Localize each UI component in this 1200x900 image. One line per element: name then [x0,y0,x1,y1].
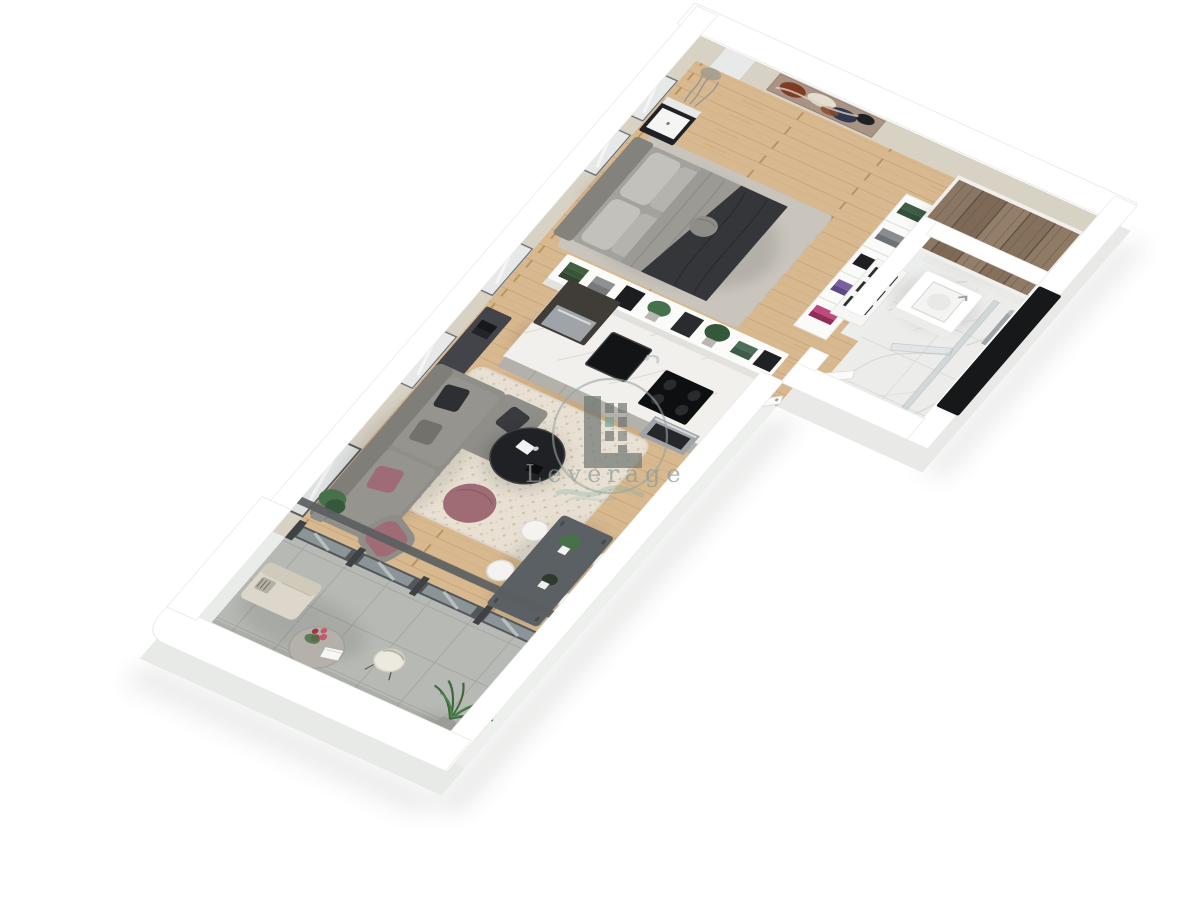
floorplan-svg: Leverage [0,0,1200,900]
floorplan-render: { "watermark": { "brand": "Leverage", "c… [0,0,1200,900]
watermark-brand: Leverage [525,460,686,488]
